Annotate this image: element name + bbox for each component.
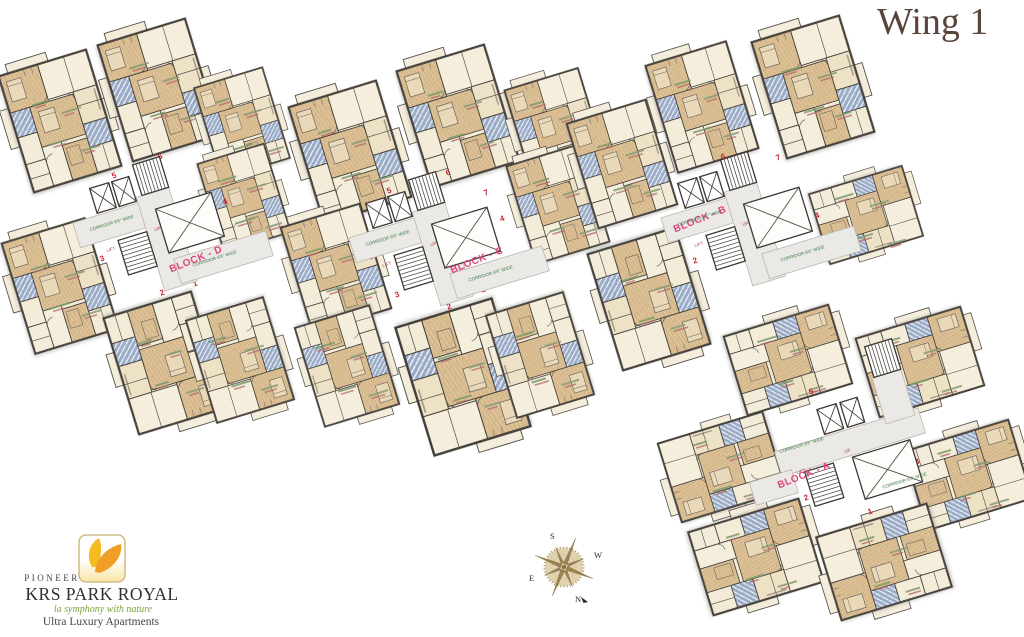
svg-text:Ultra Luxury Apartments: Ultra Luxury Apartments: [43, 616, 160, 628]
svg-text:S: S: [550, 531, 555, 541]
svg-text:N: N: [575, 594, 581, 604]
svg-text:Wing 1: Wing 1: [877, 1, 988, 43]
svg-text:PIONEER: PIONEER: [24, 573, 80, 583]
svg-text:la symphony with nature: la symphony with nature: [54, 604, 153, 615]
svg-text:KRS PARK ROYAL: KRS PARK ROYAL: [25, 584, 178, 604]
svg-text:W: W: [594, 550, 602, 560]
svg-text:E: E: [529, 573, 534, 583]
